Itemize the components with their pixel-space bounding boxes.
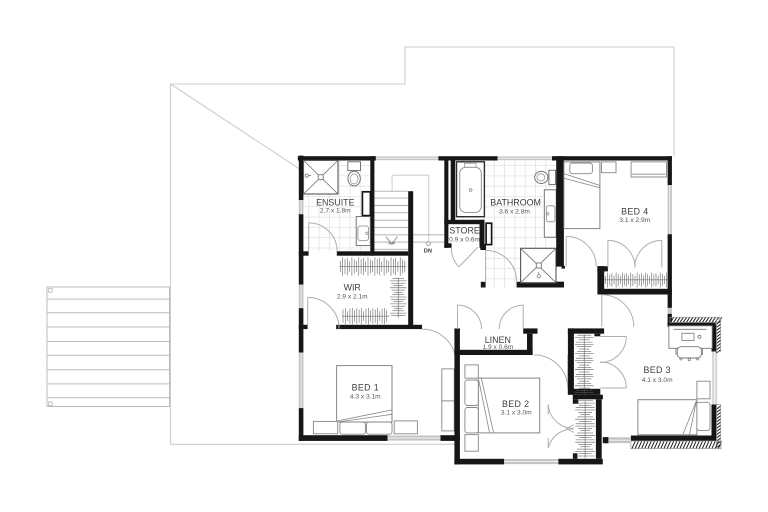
svg-text:BED 1: BED 1 [352,382,379,392]
svg-text:STORE: STORE [449,226,479,236]
svg-text:4.1 x 3.0m: 4.1 x 3.0m [642,377,673,384]
svg-text:3.1 x 2.9m: 3.1 x 2.9m [619,217,650,224]
svg-text:ENSUITE: ENSUITE [316,198,355,208]
svg-text:4.3 x 3.1m: 4.3 x 3.1m [350,394,381,401]
svg-text:2.7 x 1.8m: 2.7 x 1.8m [320,207,351,214]
svg-text:BED 3: BED 3 [643,365,670,375]
svg-text:BATHROOM: BATHROOM [490,198,541,208]
svg-text:BED 2: BED 2 [502,399,529,409]
svg-text:3.1 x 3.0m: 3.1 x 3.0m [501,410,532,417]
svg-text:2.9 x 2.1m: 2.9 x 2.1m [337,293,368,300]
svg-text:1.9 x 0.6m: 1.9 x 0.6m [483,344,514,351]
svg-text:BED 4: BED 4 [621,206,648,216]
svg-text:3.6 x 2.8m: 3.6 x 2.8m [499,208,530,215]
svg-text:DN: DN [424,248,432,254]
svg-text:WIR: WIR [344,283,361,293]
svg-text:0.9 x 0.6m: 0.9 x 0.6m [449,236,480,243]
